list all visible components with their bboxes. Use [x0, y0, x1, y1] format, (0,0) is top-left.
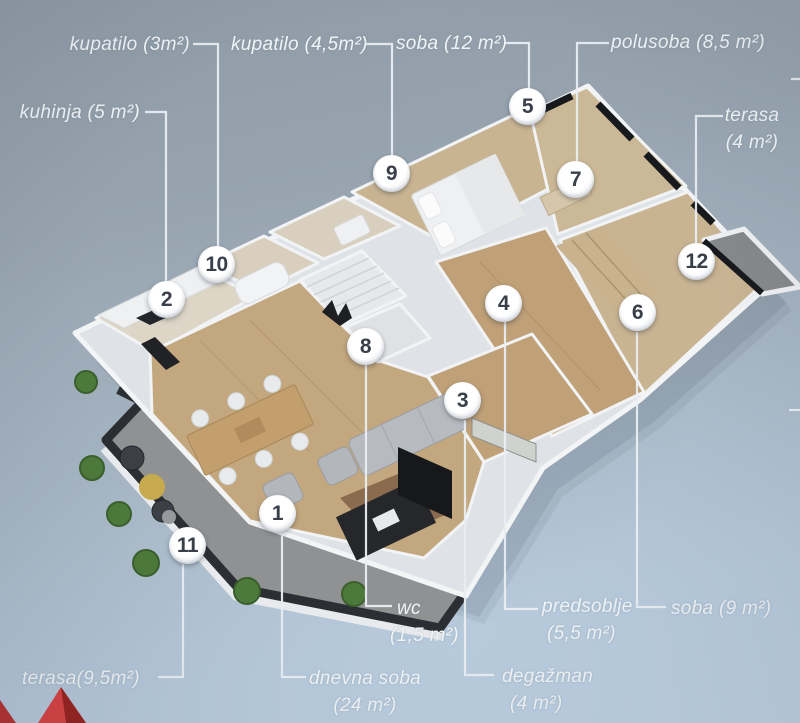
room-label-kuhinja: kuhinja (5 m²) [12, 99, 140, 126]
marker-number: 10 [205, 253, 227, 277]
floor-plan-page: { "page": { "type": "3d-floor-plan-rende… [0, 0, 800, 723]
wicker-chair [120, 446, 144, 470]
room-marker-12: 12 [678, 243, 715, 280]
label-text: polusoba (8,5 m²) [611, 32, 765, 53]
yellow-throw [139, 474, 165, 500]
label-text: kupatilo (3m²) [70, 34, 190, 55]
room-label-kupatilo-45: kupatilo (4,5m²) [231, 31, 368, 58]
room-label-kupatilo-3: kupatilo (3m²) [68, 31, 190, 58]
label-area: (4 m²) [710, 129, 794, 156]
label-text: wc [397, 595, 459, 622]
label-text: soba (12 m²) [396, 33, 507, 54]
room-label-soba-12: soba (12 m²) [396, 30, 507, 57]
label-area: (5,5 m²) [547, 620, 633, 647]
connector-soba12 [505, 43, 529, 90]
room-marker-3: 3 [444, 382, 481, 419]
room-marker-5: 5 [509, 88, 546, 125]
bush [234, 578, 260, 604]
label-area: (1,5 m²) [390, 622, 459, 649]
room-marker-6: 6 [619, 294, 656, 331]
bush [133, 550, 159, 576]
room-marker-1: 1 [259, 495, 296, 532]
label-text: dnevna soba [298, 665, 432, 692]
bush [107, 502, 131, 526]
red-logo [0, 687, 86, 723]
room-marker-10: 10 [198, 246, 235, 283]
room-marker-8: 8 [347, 328, 384, 365]
marker-number: 4 [498, 292, 509, 316]
label-text: terasa [710, 102, 794, 129]
room-marker-9: 9 [373, 155, 410, 192]
room-label-terasa-95: terasa(9,5m²) [22, 665, 140, 692]
side-table [162, 510, 176, 524]
marker-number: 1 [272, 502, 283, 526]
room-marker-4: 4 [485, 285, 522, 322]
marker-number: 8 [360, 335, 371, 359]
room-marker-11: 11 [169, 527, 206, 564]
marker-number: 7 [570, 168, 581, 192]
room-marker-7: 7 [557, 161, 594, 198]
connector-kuhinja [145, 112, 166, 282]
room-label-wc: wc (1,5 m²) [390, 595, 459, 649]
connector-terasa95 [158, 564, 183, 677]
marker-number: 2 [161, 288, 172, 312]
room-label-terasa-4: terasa (4 m²) [710, 102, 794, 156]
label-text: kupatilo (4,5m²) [231, 34, 368, 55]
room-label-polusoba: polusoba (8,5 m²) [611, 29, 765, 56]
connector-kupatilo45 [366, 44, 392, 157]
room-label-soba-9: soba (9 m²) [671, 595, 771, 622]
label-area: (24 m²) [298, 692, 432, 719]
marker-number: 12 [685, 250, 707, 274]
label-text: degažman [502, 663, 593, 690]
label-text: soba (9 m²) [671, 598, 771, 619]
connector-kupatilo3 [193, 44, 218, 248]
room-label-dnevna-soba: dnevna soba (24 m²) [298, 665, 432, 719]
marker-number: 11 [177, 534, 198, 558]
label-text: predsoblje [542, 593, 633, 620]
room-label-predsoblje: predsoblje (5,5 m²) [542, 593, 633, 647]
label-text: kuhinja (5 m²) [20, 102, 140, 123]
marker-number: 9 [386, 162, 397, 186]
bush [80, 456, 104, 480]
bush [75, 371, 97, 393]
marker-number: 5 [522, 95, 533, 119]
marker-number: 3 [457, 389, 468, 413]
label-text: terasa(9,5m²) [22, 668, 140, 689]
label-area: (4 m²) [510, 690, 593, 717]
room-label-degazman: degažman (4 m²) [502, 663, 593, 717]
marker-number: 6 [632, 301, 643, 325]
room-marker-2: 2 [148, 281, 185, 318]
bush [342, 582, 366, 606]
